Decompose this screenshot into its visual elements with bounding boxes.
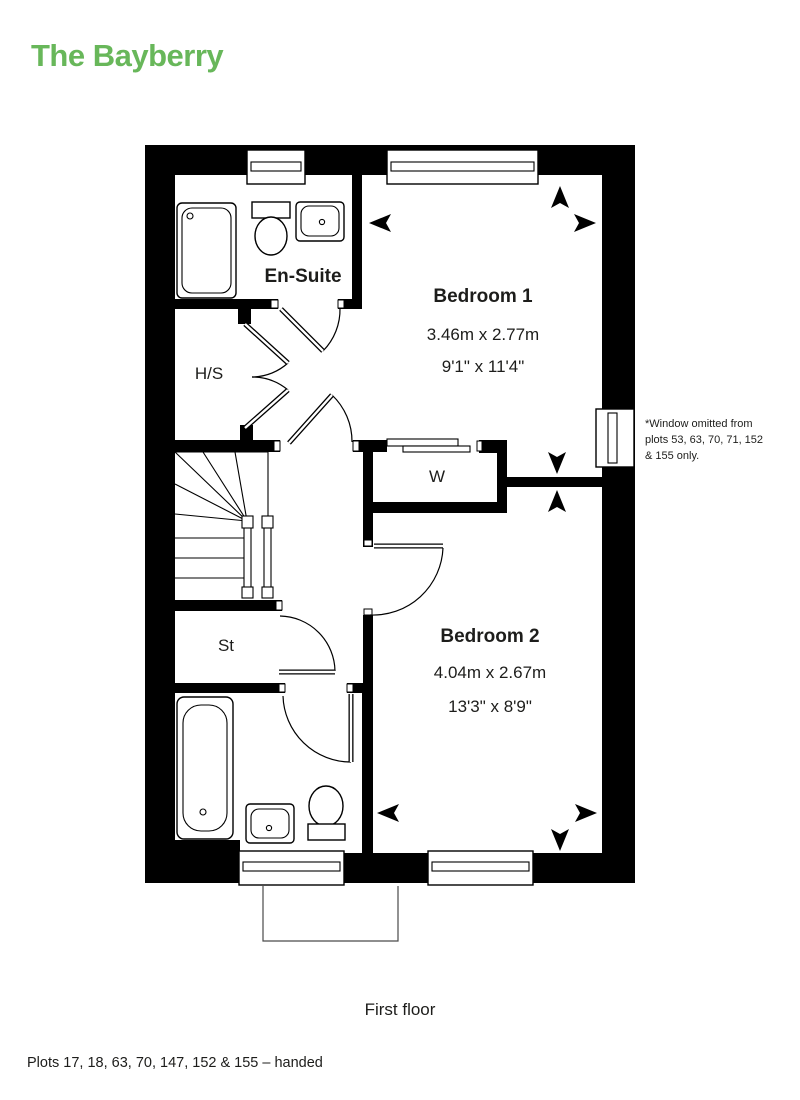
- bathroom-basin: [246, 804, 294, 843]
- bedroom2-imperial-dimensions: 13'3" x 8'9": [448, 697, 532, 717]
- bedroom1-left-arrow-icon: [369, 214, 391, 232]
- floorplan-page: The Bayberry En-Suite Bedroom 1 3.46m x …: [0, 0, 800, 1100]
- window-omitted-note: *Window omitted from plots 53, 63, 70, 7…: [645, 416, 770, 464]
- divider-up-arrow-icon: [548, 490, 566, 512]
- ensuite-shower: [177, 203, 236, 298]
- bathroom-window: [239, 851, 344, 885]
- bedroom1-door: [289, 395, 352, 443]
- floor-caption: First floor: [365, 1000, 436, 1020]
- window-note-line2: plots 53, 63, 70, 71, 152: [645, 432, 770, 448]
- plots-handed-note: Plots 17, 18, 63, 70, 147, 152 & 155 – h…: [27, 1055, 323, 1071]
- ensuite-basin: [296, 202, 344, 241]
- window-note-line3: & 155 only.: [645, 448, 770, 464]
- bedroom1-window: [387, 150, 538, 184]
- wardrobe-label: W: [429, 467, 445, 487]
- bathtub: [177, 697, 233, 839]
- bedroom1-metric-dimensions: 3.46m x 2.77m: [427, 325, 539, 345]
- wardrobe-sliding-doors: [387, 439, 470, 452]
- ensuite-toilet: [252, 202, 290, 255]
- doors: [245, 308, 470, 762]
- bathroom-door: [283, 694, 351, 762]
- store-door: [279, 616, 335, 672]
- ensuite-door: [281, 308, 340, 351]
- bedroom1-imperial-dimensions: 9'1" x 11'4": [442, 357, 525, 377]
- ensuite-window: [247, 150, 305, 184]
- bedroom2-door: [370, 546, 443, 615]
- bedroom2-metric-dimensions: 4.04m x 2.67m: [434, 663, 546, 683]
- staircase: [175, 452, 273, 598]
- porch-outline: [263, 886, 398, 941]
- hs-label: H/S: [195, 364, 223, 384]
- bedroom2-label: Bedroom 2: [440, 626, 539, 648]
- bedroom2-left-arrow-icon: [377, 804, 399, 822]
- ensuite-label: En-Suite: [264, 266, 341, 288]
- page-title: The Bayberry: [31, 38, 223, 74]
- floorplan-drawing: [0, 0, 800, 1100]
- omittable-side-window: [596, 409, 634, 467]
- bedroom1-up-arrow-icon: [551, 186, 569, 208]
- windows: [239, 150, 634, 885]
- bedroom1-right-arrow-icon: [574, 214, 596, 232]
- bedroom2-down-arrow-icon: [551, 829, 569, 851]
- bedroom2-right-arrow-icon: [575, 804, 597, 822]
- bedroom1-label: Bedroom 1: [433, 286, 532, 308]
- bedroom2-window: [428, 851, 533, 885]
- bathroom-toilet: [308, 786, 345, 840]
- window-note-line1: *Window omitted from: [645, 416, 770, 432]
- store-label: St: [218, 636, 234, 656]
- divider-down-arrow-icon: [548, 452, 566, 474]
- hs-cupboard-doors: [245, 324, 288, 428]
